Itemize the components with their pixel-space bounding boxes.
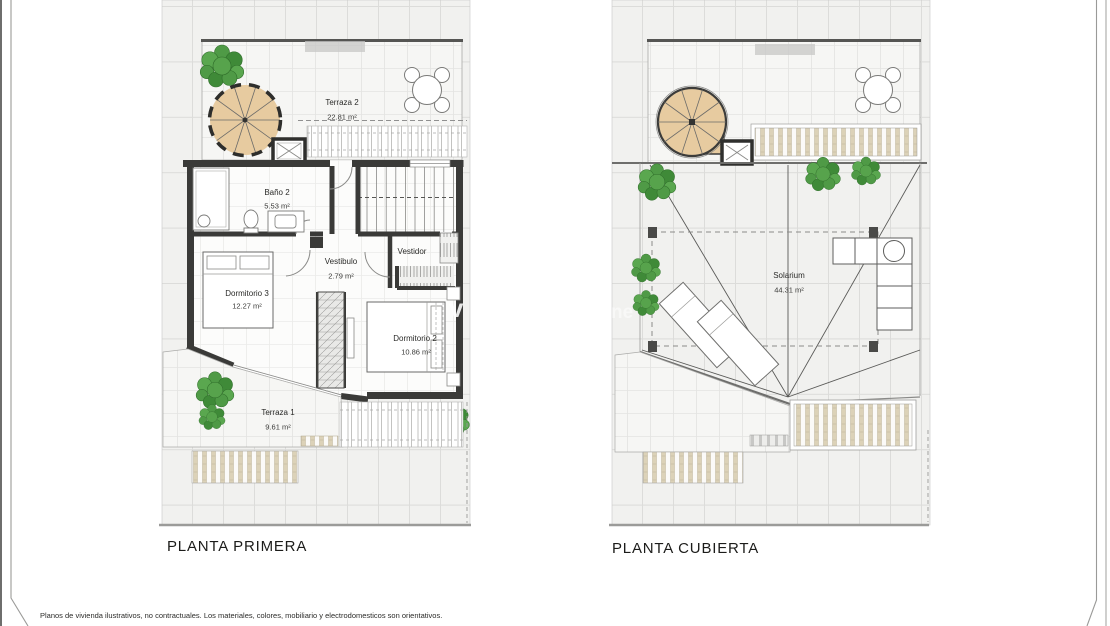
pergola-slats — [790, 400, 916, 450]
floor-plan-sheet: Terraza 2 22.81 m² Baño 2 5.53 m² Vestib… — [0, 0, 1110, 626]
room-area-dormitorio3: 12.27 m² — [232, 302, 262, 310]
room-area-vestibulo: 2.79 m² — [328, 272, 353, 280]
plan-title-planta-primera: PLANTA PRIMERA — [167, 538, 307, 555]
floor-plan-drawing-planta-cubierta — [605, 0, 935, 530]
room-label-bano2: Baño 2 — [264, 189, 289, 197]
room-label-terraza1: Terraza 1 — [261, 409, 294, 417]
room-label-solarium: Solarium — [773, 272, 805, 280]
room-label-vestidor: Vestidor — [398, 248, 427, 256]
blurred-watermark-bar — [755, 44, 815, 55]
wardrobe — [399, 266, 453, 286]
pergola-post — [648, 341, 657, 352]
slat-fence — [192, 451, 298, 483]
plan-title-planta-cubierta: PLANTA CUBIERTA — [612, 540, 759, 557]
stair-void-hatch — [318, 292, 344, 388]
wardrobe — [440, 233, 458, 263]
room-area-dormitorio2: 10.86 m² — [401, 348, 431, 356]
skylight-box — [273, 139, 305, 163]
pergola-slats — [307, 126, 467, 157]
pergola-slats — [340, 402, 463, 447]
pergola-post — [869, 341, 878, 352]
floor-plan-drawing-planta-primera — [155, 0, 475, 530]
pergola-post — [869, 227, 878, 238]
skylight-box — [722, 141, 752, 164]
pergola-post — [648, 227, 657, 238]
wall-stub — [310, 237, 323, 248]
slat-fence — [643, 452, 743, 483]
shower-drain — [198, 215, 210, 227]
toilet — [244, 210, 258, 228]
slat-strip — [750, 435, 788, 446]
nightstand — [447, 373, 460, 386]
room-area-terraza2: 22.81 m² — [327, 113, 357, 121]
room-area-bano2: 5.53 m² — [264, 202, 289, 210]
disclaimer-text: Planos de vivienda ilustrativos, no cont… — [40, 611, 442, 620]
nightstand — [447, 287, 460, 300]
door-leaf — [347, 318, 354, 358]
slat-strip — [301, 436, 338, 446]
pergola-slats — [751, 124, 921, 160]
room-area-terraza1: 9.61 m² — [265, 423, 290, 431]
spiral-staircase — [210, 85, 281, 156]
room-label-dormitorio3: Dormitorio 3 — [225, 290, 269, 298]
room-area-solarium: 44.31 m² — [774, 286, 804, 294]
blurred-watermark-bar — [305, 41, 365, 52]
room-label-dormitorio2: Dormitorio 2 — [393, 335, 437, 343]
room-label-vestibulo: Vestibulo — [325, 258, 357, 266]
planter-pot — [884, 241, 905, 262]
room-label-terraza2: Terraza 2 — [325, 99, 358, 107]
